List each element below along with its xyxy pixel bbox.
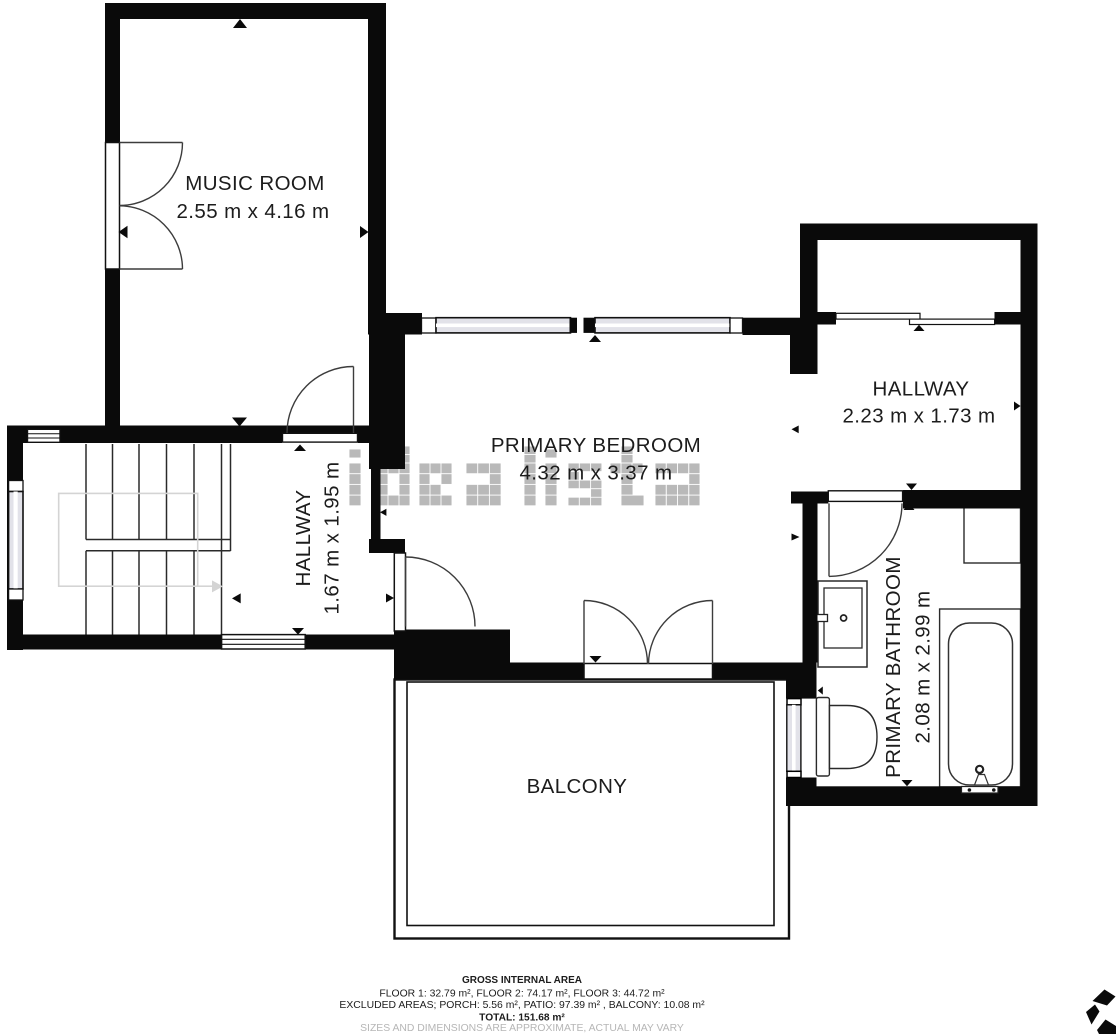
svg-text:BALCONY: BALCONY: [527, 775, 628, 798]
svg-text:HALLWAY: HALLWAY: [292, 490, 315, 587]
svg-text:PRIMARY BEDROOM: PRIMARY BEDROOM: [491, 434, 701, 457]
svg-text:HALLWAY: HALLWAY: [873, 378, 970, 401]
svg-text:1.67 m x 1.95 m: 1.67 m x 1.95 m: [321, 462, 344, 615]
svg-text:SIZES AND DIMENSIONS ARE APPRO: SIZES AND DIMENSIONS ARE APPROXIMATE, AC…: [360, 1023, 684, 1034]
svg-text:2.23 m x 1.73 m: 2.23 m x 1.73 m: [843, 405, 996, 428]
svg-text:MUSIC ROOM: MUSIC ROOM: [185, 172, 325, 195]
svg-text:GROSS INTERNAL AREA: GROSS INTERNAL AREA: [462, 975, 582, 986]
svg-text:2.08 m x 2.99 m: 2.08 m x 2.99 m: [912, 591, 935, 744]
svg-text:EXCLUDED AREAS; PORCH: 5.56 m²: EXCLUDED AREAS; PORCH: 5.56 m², PATIO: 9…: [339, 1000, 705, 1011]
svg-text:FLOOR 1: 32.79 m², FLOOR 2: 74: FLOOR 1: 32.79 m², FLOOR 2: 74.17 m², FL…: [379, 989, 665, 1000]
svg-text:PRIMARY BATHROOM: PRIMARY BATHROOM: [882, 556, 905, 778]
svg-text:4.32 m x 3.37 m: 4.32 m x 3.37 m: [520, 462, 673, 485]
svg-text:TOTAL: 151.68 m²: TOTAL: 151.68 m²: [479, 1013, 565, 1024]
svg-text:2.55 m x 4.16 m: 2.55 m x 4.16 m: [177, 200, 330, 223]
